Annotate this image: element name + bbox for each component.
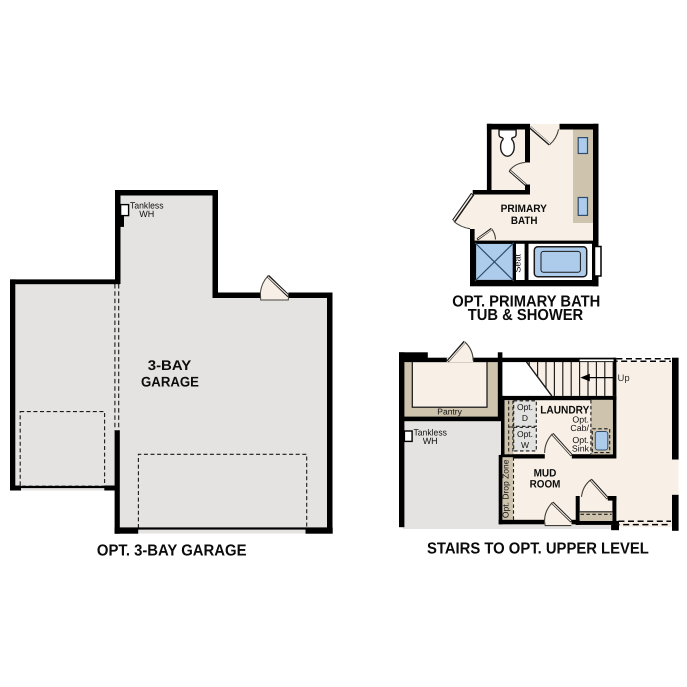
svg-text:GARAGE: GARAGE	[141, 374, 199, 390]
svg-text:OPT. 3-BAY GARAGE: OPT. 3-BAY GARAGE	[97, 542, 247, 559]
svg-text:Up: Up	[618, 373, 630, 384]
svg-text:ROOM: ROOM	[530, 479, 561, 491]
svg-text:3-BAY: 3-BAY	[148, 357, 192, 373]
svg-text:Sink: Sink	[572, 444, 590, 454]
svg-text:WH: WH	[423, 436, 438, 446]
svg-text:Opt.: Opt.	[517, 429, 533, 439]
svg-text:Opt.: Opt.	[517, 402, 533, 412]
svg-text:D: D	[522, 413, 528, 423]
svg-text:Pantry: Pantry	[437, 407, 462, 417]
svg-text:BATH: BATH	[511, 215, 538, 227]
svg-text:W: W	[521, 440, 529, 450]
svg-text:Seat: Seat	[513, 254, 523, 273]
svg-text:PRIMARY: PRIMARY	[501, 203, 548, 215]
svg-text:TUB & SHOWER: TUB & SHOWER	[468, 307, 584, 324]
svg-text:Cab/: Cab/	[570, 423, 589, 433]
svg-text:WH: WH	[139, 209, 154, 219]
svg-text:STAIRS TO OPT. UPPER LEVEL: STAIRS TO OPT. UPPER LEVEL	[427, 541, 649, 558]
svg-text:MUD: MUD	[534, 467, 557, 479]
